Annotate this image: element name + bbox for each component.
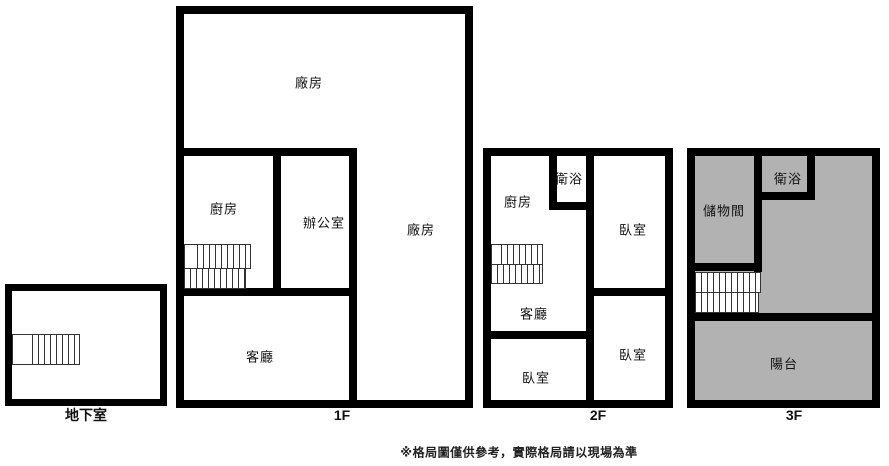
- f3-wall-balcony-top: [687, 313, 880, 321]
- f1-staircase-upper: [184, 244, 251, 269]
- f3-wall-bath-bottom: [754, 192, 815, 200]
- stair-landing: [492, 245, 502, 264]
- f2-room-bedroom-upper-right: 臥室: [619, 220, 647, 239]
- stair-treads: [502, 245, 542, 264]
- f1-room-factory-main: 廠房: [295, 73, 323, 92]
- f2-caption: 2F: [590, 407, 606, 423]
- floor-plan-canvas: 地下室 廠房 廚房 辦公室 廠房 客廳 1F 廚房 衛浴 臥室 客廳 臥室 臥室…: [0, 0, 889, 466]
- f1-room-kitchen: 廚房: [210, 199, 238, 218]
- stair-landing: [185, 245, 198, 268]
- f1-room-office: 辦公室: [303, 213, 345, 232]
- stair-landing: [13, 335, 33, 364]
- f1-room-factory-side: 廠房: [407, 220, 435, 239]
- f1-wall-kitchen-office: [273, 148, 281, 296]
- f3-wall-storage-right: [754, 148, 762, 272]
- f1-room-living: 客廳: [246, 347, 274, 366]
- f1-wall-factory-bottom: [176, 148, 357, 156]
- f3-room-balcony: 陽台: [770, 354, 798, 373]
- f2-wall-bedrooms-divider: [586, 288, 673, 296]
- disclaimer-note: ※格局圖僅供參考，實際格局請以現場為準: [400, 444, 637, 461]
- f3-room-bathroom: 衛浴: [774, 169, 802, 188]
- basement-caption: 地下室: [65, 405, 107, 425]
- f2-staircase-lower: [491, 264, 543, 284]
- f2-staircase-upper: [491, 244, 543, 265]
- stair-treads: [185, 269, 245, 288]
- f2-wall-living-bottom: [483, 331, 594, 339]
- f1-wall-living-top: [176, 288, 357, 296]
- stair-treads: [33, 335, 79, 364]
- stair-treads: [492, 265, 542, 283]
- stair-treads: [696, 293, 758, 312]
- f2-room-bedroom-lower-left: 臥室: [522, 368, 550, 387]
- stair-treads: [198, 245, 250, 268]
- f2-room-living: 客廳: [520, 304, 548, 323]
- stair-treads: [696, 273, 760, 292]
- basement-staircase: [12, 334, 80, 365]
- f1-caption: 1F: [334, 407, 350, 423]
- f3-room-storage: 儲物間: [703, 201, 745, 220]
- f1-staircase-lower: [184, 268, 246, 289]
- f2-room-bathroom: 衛浴: [555, 169, 583, 188]
- f1-wall-factory-side: [349, 148, 357, 408]
- f2-wall-central: [586, 148, 594, 408]
- f3-staircase-lower: [695, 292, 759, 313]
- f3-wall-storage-bottom: [687, 263, 762, 271]
- f3-wall-bath-right: [807, 148, 815, 200]
- f3-staircase-upper: [695, 272, 761, 293]
- f3-caption: 3F: [786, 407, 802, 423]
- f2-room-bedroom-lower-right: 臥室: [619, 345, 647, 364]
- f2-room-kitchen: 廚房: [504, 192, 532, 211]
